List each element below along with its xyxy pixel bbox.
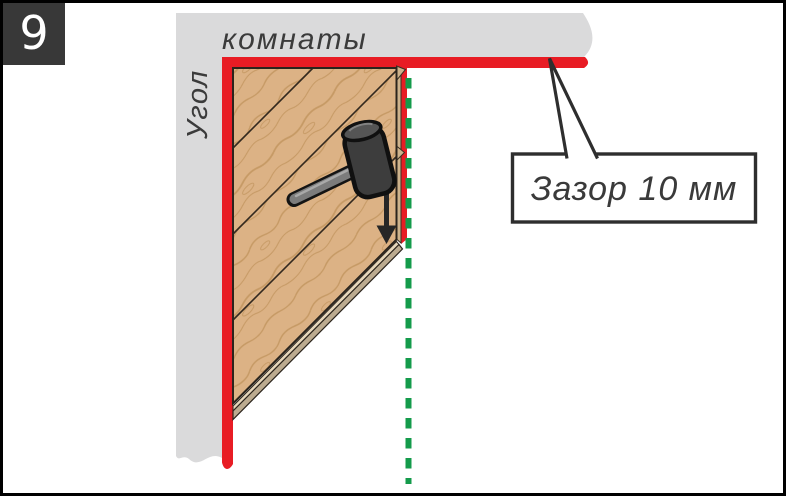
step-badge: 9 (3, 3, 65, 65)
wall-label-horizontal: комнаты (222, 23, 368, 56)
instruction-diagram: комнаты Угол (0, 0, 786, 496)
plank-edge-gap-strip (401, 68, 407, 244)
step-number: 9 (19, 6, 48, 60)
callout-label: Зазор 10 мм (531, 170, 738, 208)
wall-label-vertical: Угол (182, 69, 214, 140)
diagram-canvas: комнаты Угол (0, 0, 786, 496)
